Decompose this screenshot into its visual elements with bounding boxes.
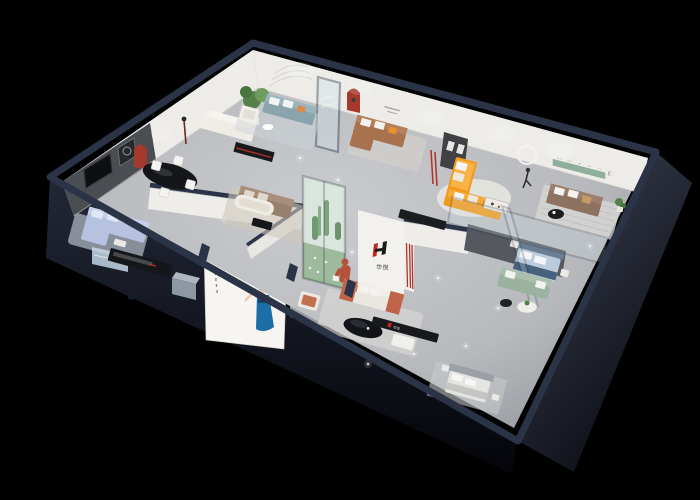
- round-side-table: [262, 124, 274, 131]
- glass-atrium: [303, 176, 351, 289]
- table-plant: [525, 301, 530, 306]
- mannequin-tablet: [333, 276, 340, 282]
- black-accent-chair: [500, 299, 512, 307]
- niche-sculpture: [352, 98, 356, 102]
- brand-logo-text: 华悦: [376, 263, 389, 272]
- showroom-render: H U A Y U E: [0, 0, 700, 500]
- pillar-face: [358, 210, 404, 296]
- round-black-table: [548, 209, 564, 219]
- isometric-floorplan-svg: H U A Y U E: [0, 0, 700, 500]
